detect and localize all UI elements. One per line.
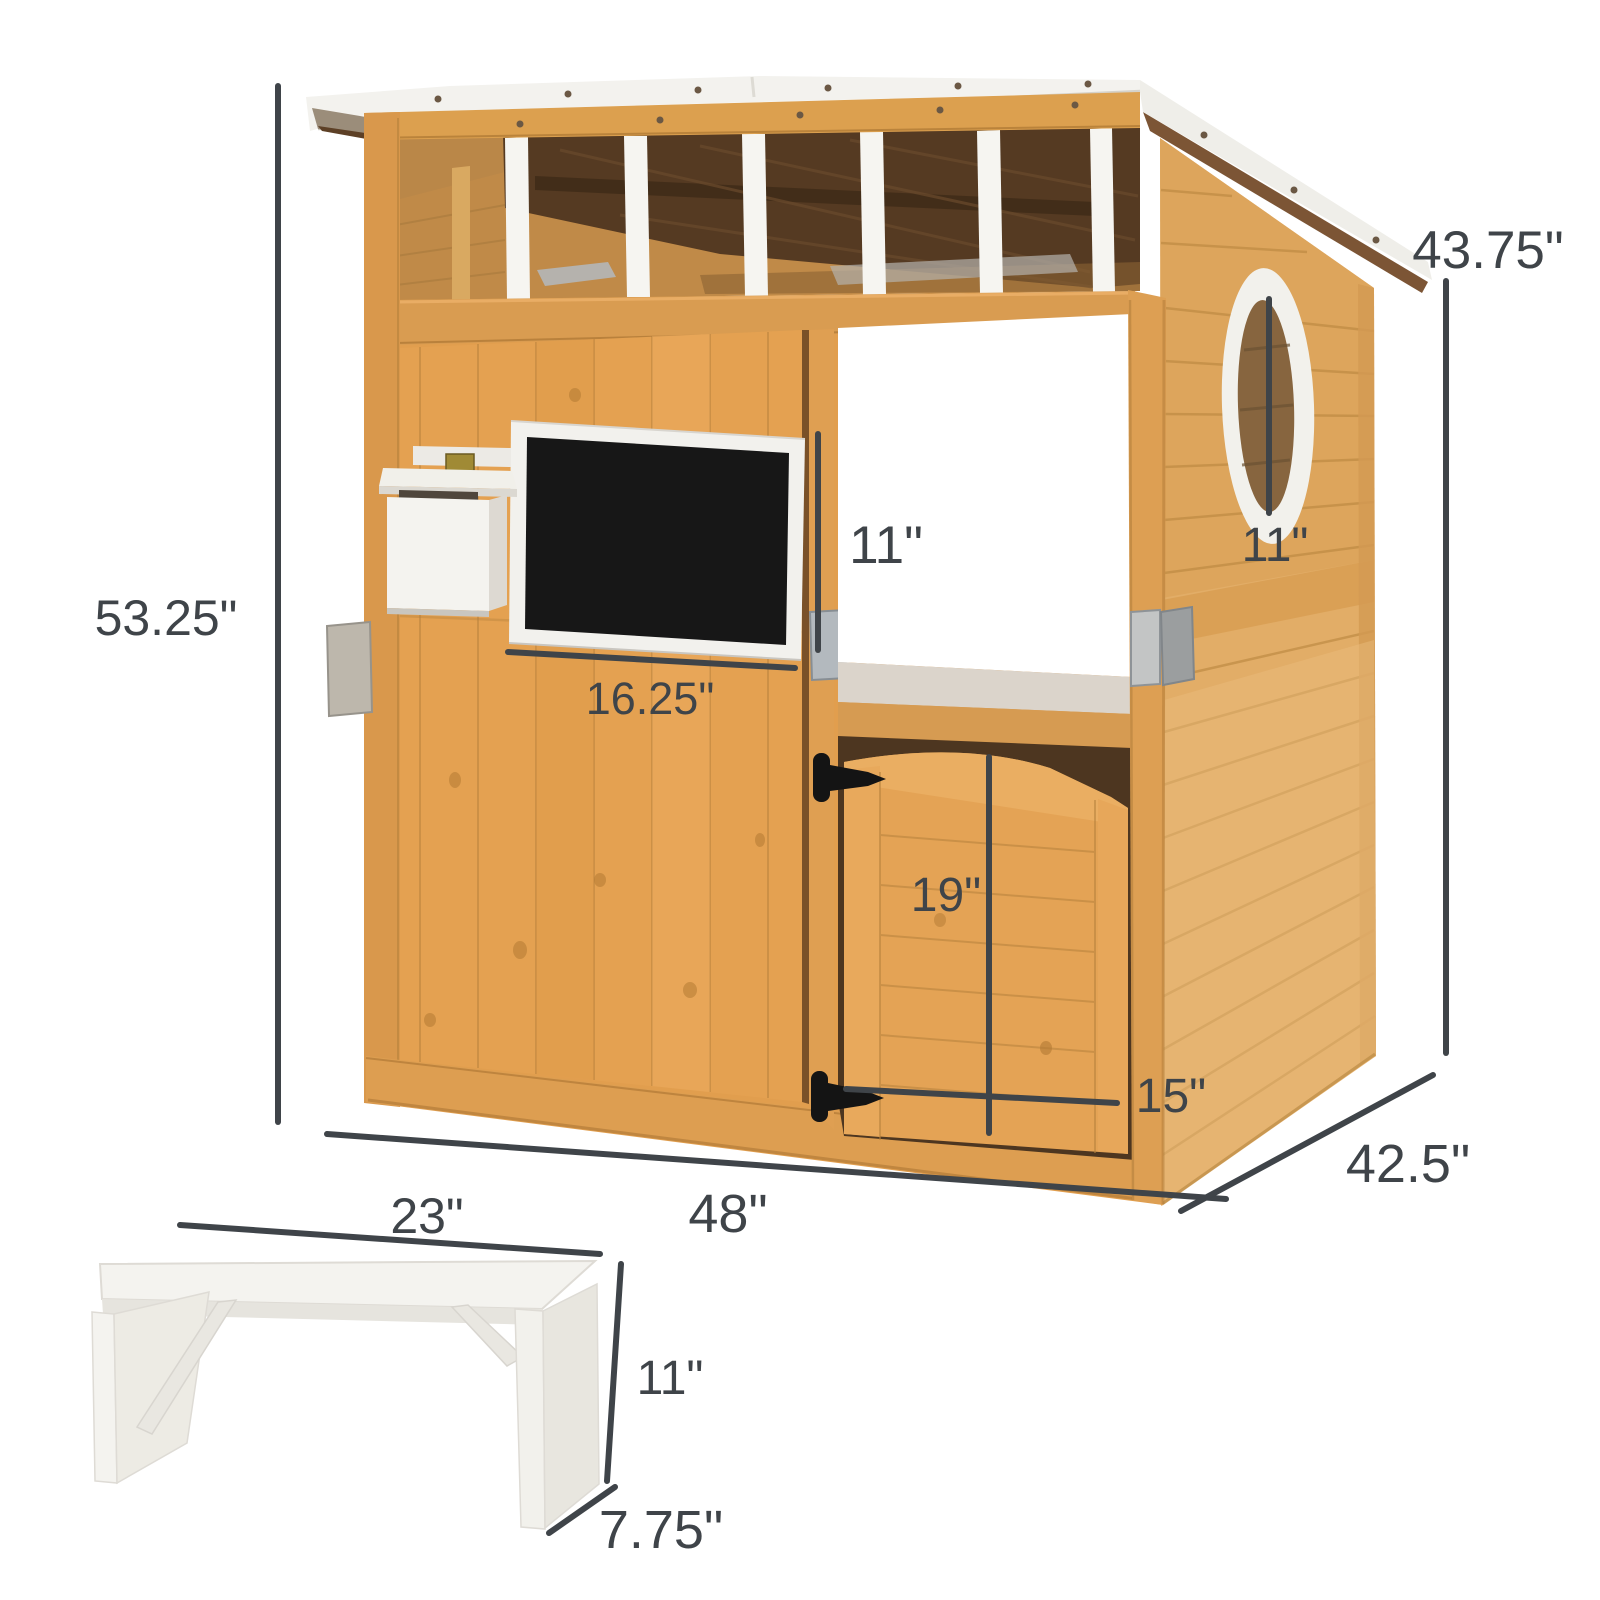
svg-text:11": 11" xyxy=(849,516,923,575)
svg-text:15": 15" xyxy=(1136,1070,1206,1123)
svg-text:23": 23" xyxy=(390,1188,463,1244)
svg-text:16.25": 16.25" xyxy=(586,673,715,724)
svg-text:48": 48" xyxy=(688,1184,767,1244)
svg-text:11": 11" xyxy=(1242,519,1309,572)
svg-text:53.25": 53.25" xyxy=(95,590,238,646)
svg-text:19": 19" xyxy=(911,869,981,922)
svg-text:42.5": 42.5" xyxy=(1346,1134,1470,1194)
svg-text:7.75": 7.75" xyxy=(599,1500,723,1560)
svg-text:43.75": 43.75" xyxy=(1412,221,1563,280)
svg-text:11": 11" xyxy=(637,1352,704,1405)
